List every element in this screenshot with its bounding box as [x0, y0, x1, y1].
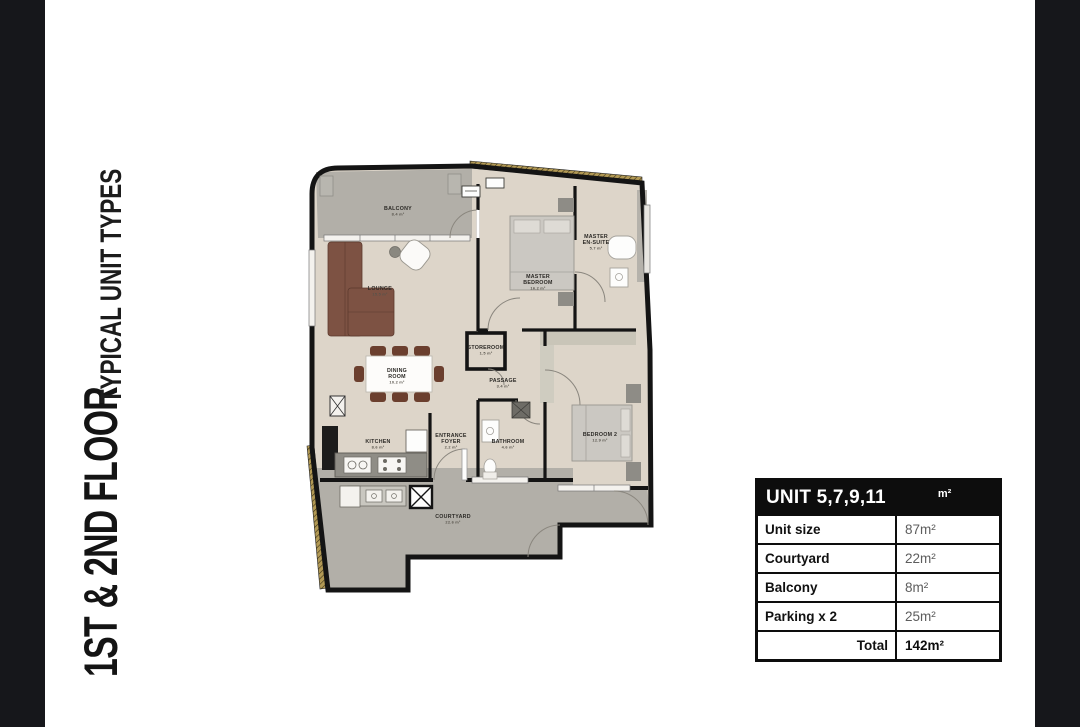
unit-name: UNIT 5,7,9,11 — [766, 487, 886, 509]
floor-plan: BALCONY8.4 m²LOUNGE15.5 m²MASTERBEDROOM1… — [290, 150, 680, 610]
ac-unit-icon — [462, 186, 480, 197]
unit-info-table: UNIT 5,7,9,11 m² Unit size 87m² Courtyar… — [755, 478, 1002, 662]
right-frame-bar — [1035, 0, 1080, 727]
courtyard-utility-icons — [340, 486, 432, 508]
row-label: Balcony — [758, 574, 897, 601]
row-label: Courtyard — [758, 545, 897, 572]
row-value: 22m² — [897, 545, 999, 572]
hall-strip — [540, 331, 636, 345]
total-value: 142m² — [897, 632, 999, 659]
room-label-dining-room: DININGROOM10.2 m² — [387, 368, 407, 385]
unit-sup: m² — [938, 488, 951, 500]
ac-unit-icon — [486, 178, 504, 188]
side-table-icon — [390, 247, 401, 258]
pillar-icon — [320, 176, 333, 196]
total-label: Total — [758, 632, 897, 659]
floor-plan-svg: BALCONY8.4 m²LOUNGE15.5 m²MASTERBEDROOM1… — [290, 150, 680, 610]
left-frame-bar — [0, 0, 45, 727]
row-value: 8m² — [897, 574, 999, 601]
page-subtitle: TYPICAL UNIT TYPES — [95, 177, 129, 395]
page: { "page": { "main_title": "1ST & 2ND FLO… — [0, 0, 1080, 727]
table-row-total: Total 142m² — [758, 630, 999, 659]
table-row: Unit size 87m² — [758, 514, 999, 543]
row-value: 87m² — [897, 516, 999, 543]
table-row: Parking x 2 25m² — [758, 601, 999, 630]
table-row: Courtyard 22m² — [758, 543, 999, 572]
unit-table-header: UNIT 5,7,9,11 m² — [758, 481, 999, 514]
hall-strip2 — [540, 345, 554, 403]
row-value: 25m² — [897, 603, 999, 630]
row-label: Parking x 2 — [758, 603, 897, 630]
table-row: Balcony 8m² — [758, 572, 999, 601]
row-label: Unit size — [758, 516, 897, 543]
page-title: 1ST & 2ND FLOOR — [75, 417, 125, 647]
pillar-icon — [448, 174, 461, 194]
